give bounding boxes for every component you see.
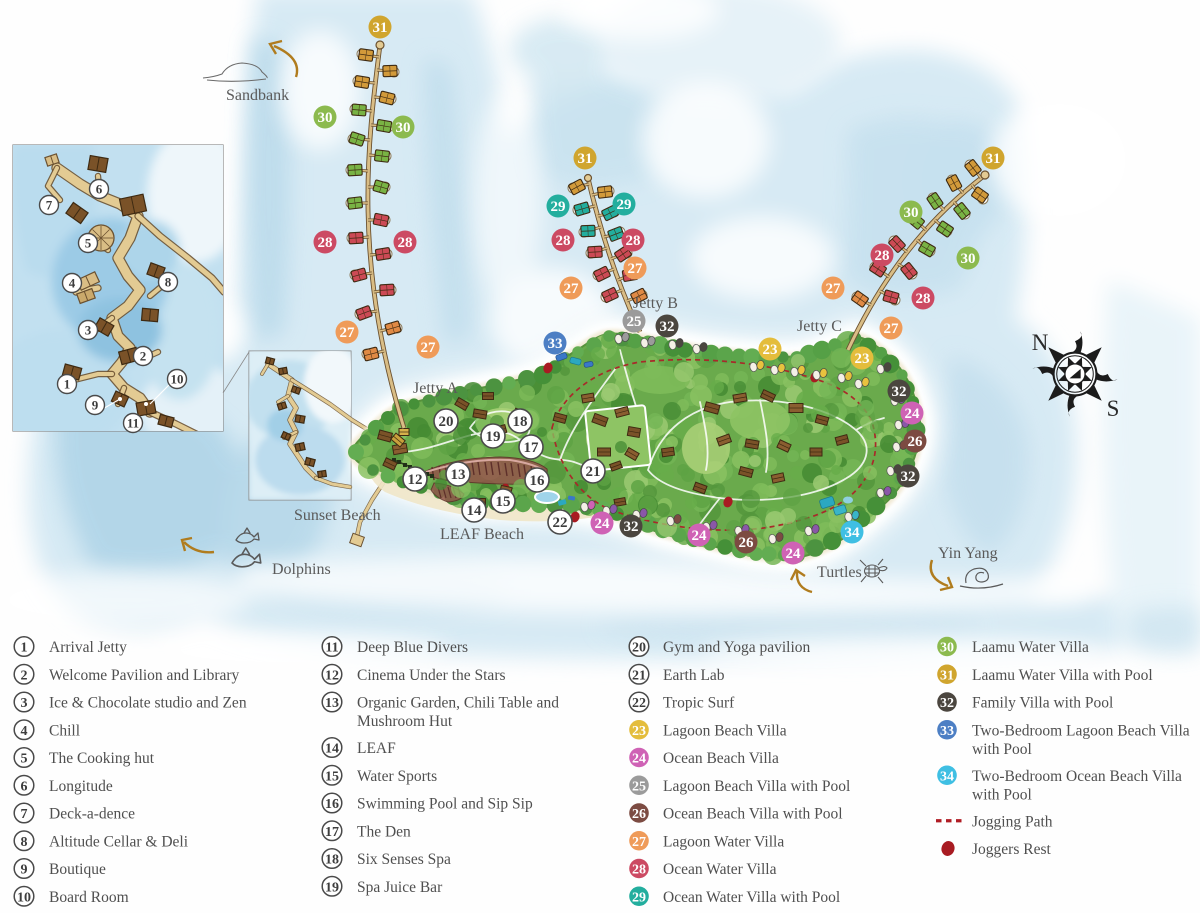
- svg-text:33: 33: [548, 336, 563, 352]
- svg-text:Lagoon Water Villa: Lagoon Water Villa: [663, 833, 784, 850]
- svg-text:Ocean Water Villa: Ocean Water Villa: [663, 861, 777, 878]
- svg-text:Ocean Beach Villa with Pool: Ocean Beach Villa with Pool: [663, 806, 843, 823]
- svg-text:30: 30: [904, 205, 919, 221]
- svg-text:Sandbank: Sandbank: [226, 87, 289, 104]
- svg-text:Swimming Pool and Sip Sip: Swimming Pool and Sip Sip: [357, 796, 533, 813]
- svg-text:27: 27: [884, 321, 900, 337]
- svg-text:9: 9: [21, 863, 28, 878]
- svg-text:Family Villa with Pool: Family Villa with Pool: [972, 695, 1113, 712]
- svg-text:13: 13: [325, 696, 339, 711]
- svg-text:2: 2: [21, 668, 28, 683]
- svg-text:16: 16: [325, 797, 339, 812]
- svg-text:31: 31: [940, 668, 954, 683]
- svg-text:Deck-a-dence: Deck-a-dence: [49, 806, 135, 823]
- svg-text:29: 29: [617, 197, 632, 213]
- svg-text:Joggers Rest: Joggers Rest: [972, 841, 1051, 858]
- svg-text:Six Senses Spa: Six Senses Spa: [357, 851, 451, 868]
- svg-text:27: 27: [628, 261, 644, 277]
- svg-text:6: 6: [21, 779, 28, 794]
- svg-text:Ice & Chocolate studio and Zen: Ice & Chocolate studio and Zen: [49, 695, 247, 712]
- svg-text:Altitude Cellar & Deli: Altitude Cellar & Deli: [49, 833, 189, 850]
- svg-text:Ocean Beach Villa: Ocean Beach Villa: [663, 750, 779, 767]
- svg-text:Lagoon Beach Villa with Pool: Lagoon Beach Villa with Pool: [663, 778, 850, 795]
- svg-text:7: 7: [46, 197, 53, 212]
- svg-text:1: 1: [21, 641, 28, 656]
- svg-text:Water Sports: Water Sports: [357, 768, 437, 785]
- svg-text:24: 24: [692, 528, 708, 544]
- svg-text:5: 5: [85, 235, 92, 250]
- svg-text:14: 14: [467, 503, 483, 519]
- svg-text:21: 21: [586, 464, 601, 480]
- svg-text:with Pool: with Pool: [972, 786, 1032, 803]
- svg-text:33: 33: [940, 724, 954, 739]
- svg-text:N: N: [1032, 330, 1049, 355]
- svg-text:28: 28: [626, 233, 641, 249]
- svg-text:8: 8: [21, 835, 28, 850]
- svg-text:19: 19: [325, 880, 339, 895]
- svg-text:11: 11: [127, 415, 139, 430]
- svg-text:13: 13: [451, 467, 466, 483]
- svg-text:The Den: The Den: [357, 823, 411, 840]
- svg-text:17: 17: [325, 825, 339, 840]
- svg-text:12: 12: [325, 668, 339, 683]
- svg-text:29: 29: [632, 890, 646, 905]
- svg-text:10: 10: [171, 371, 184, 386]
- svg-text:Laamu Water Villa with Pool: Laamu Water Villa with Pool: [972, 667, 1153, 684]
- svg-text:22: 22: [553, 515, 568, 531]
- svg-text:8: 8: [165, 274, 172, 289]
- svg-text:27: 27: [632, 835, 646, 850]
- svg-text:Ocean Water Villa with Pool: Ocean Water Villa with Pool: [663, 889, 840, 906]
- svg-text:Lagoon Beach Villa: Lagoon Beach Villa: [663, 722, 787, 739]
- svg-text:28: 28: [632, 863, 646, 878]
- svg-text:28: 28: [398, 235, 413, 251]
- svg-text:22: 22: [632, 696, 646, 711]
- svg-text:27: 27: [564, 281, 580, 297]
- svg-text:34: 34: [845, 525, 861, 541]
- svg-text:7: 7: [21, 807, 28, 822]
- svg-text:Welcome Pavilion and Library: Welcome Pavilion and Library: [49, 667, 240, 684]
- svg-text:Deep Blue Divers: Deep Blue Divers: [357, 639, 468, 656]
- svg-text:LEAF: LEAF: [357, 740, 396, 757]
- svg-text:25: 25: [632, 779, 646, 794]
- svg-text:20: 20: [632, 641, 646, 656]
- svg-text:Spa Juice Bar: Spa Juice Bar: [357, 879, 443, 896]
- svg-text:26: 26: [908, 434, 924, 450]
- svg-text:Laamu Water Villa: Laamu Water Villa: [972, 639, 1089, 656]
- svg-text:24: 24: [786, 546, 802, 562]
- svg-text:30: 30: [318, 110, 333, 126]
- svg-text:LEAF Beach: LEAF Beach: [440, 526, 524, 543]
- svg-text:27: 27: [421, 340, 437, 356]
- svg-text:26: 26: [632, 807, 646, 822]
- svg-text:Yin Yang: Yin Yang: [938, 545, 998, 562]
- svg-text:The Cooking hut: The Cooking hut: [49, 750, 155, 767]
- svg-text:1: 1: [64, 376, 71, 391]
- svg-text:26: 26: [739, 535, 755, 551]
- svg-text:30: 30: [940, 641, 954, 656]
- svg-text:24: 24: [632, 752, 646, 767]
- svg-text:28: 28: [556, 233, 571, 249]
- svg-text:14: 14: [325, 742, 339, 757]
- svg-text:4: 4: [21, 724, 28, 739]
- svg-text:28: 28: [318, 235, 333, 251]
- svg-text:Two-Bedroom Lagoon Beach Villa: Two-Bedroom Lagoon Beach Villa: [972, 722, 1190, 739]
- svg-text:18: 18: [325, 853, 339, 868]
- svg-text:with Pool: with Pool: [972, 741, 1032, 758]
- svg-text:32: 32: [624, 519, 639, 535]
- svg-text:3: 3: [85, 322, 92, 337]
- svg-text:3: 3: [21, 696, 28, 711]
- svg-text:23: 23: [763, 342, 778, 358]
- svg-text:Jetty B: Jetty B: [633, 295, 678, 312]
- svg-text:24: 24: [595, 516, 611, 532]
- svg-text:Chill: Chill: [49, 722, 80, 739]
- svg-text:30: 30: [396, 120, 411, 136]
- svg-text:32: 32: [940, 696, 954, 711]
- svg-text:19: 19: [486, 429, 501, 445]
- svg-text:Jetty A: Jetty A: [413, 380, 458, 397]
- svg-text:15: 15: [496, 494, 511, 510]
- svg-text:28: 28: [875, 248, 890, 264]
- svg-text:34: 34: [940, 769, 954, 784]
- svg-text:32: 32: [660, 319, 675, 335]
- svg-text:Jetty C: Jetty C: [797, 318, 842, 335]
- svg-text:Jogging Path: Jogging Path: [972, 813, 1053, 830]
- svg-text:10: 10: [17, 890, 31, 905]
- svg-text:5: 5: [21, 752, 28, 767]
- svg-text:Dolphins: Dolphins: [272, 561, 331, 578]
- svg-text:Sunset Beach: Sunset Beach: [294, 507, 381, 524]
- svg-text:31: 31: [986, 151, 1001, 167]
- svg-text:24: 24: [905, 406, 921, 422]
- svg-text:Cinema Under the Stars: Cinema Under the Stars: [357, 667, 506, 684]
- svg-text:11: 11: [325, 641, 338, 656]
- svg-text:Arrival Jetty: Arrival Jetty: [49, 639, 127, 656]
- svg-text:4: 4: [69, 275, 76, 290]
- svg-text:18: 18: [513, 414, 528, 430]
- svg-text:Two-Bedroom Ocean Beach Villa: Two-Bedroom Ocean Beach Villa: [972, 768, 1182, 785]
- svg-text:Turtles: Turtles: [817, 564, 862, 581]
- svg-text:20: 20: [439, 414, 454, 430]
- svg-text:Mushroom Hut: Mushroom Hut: [357, 713, 453, 730]
- svg-text:27: 27: [826, 281, 842, 297]
- svg-text:27: 27: [340, 325, 356, 341]
- svg-text:Board Room: Board Room: [49, 889, 129, 906]
- svg-text:Boutique: Boutique: [49, 861, 106, 878]
- svg-text:31: 31: [373, 20, 388, 36]
- svg-text:17: 17: [524, 440, 540, 456]
- svg-text:Organic Garden, Chili Table an: Organic Garden, Chili Table and: [357, 695, 559, 712]
- svg-text:23: 23: [632, 724, 646, 739]
- svg-text:28: 28: [916, 291, 931, 307]
- svg-text:15: 15: [325, 769, 339, 784]
- svg-text:Earth Lab: Earth Lab: [663, 667, 725, 684]
- svg-text:S: S: [1107, 396, 1120, 421]
- svg-text:Tropic Surf: Tropic Surf: [663, 695, 735, 712]
- svg-text:Gym and Yoga pavilion: Gym and Yoga pavilion: [663, 639, 811, 656]
- svg-text:6: 6: [96, 181, 103, 196]
- svg-text:12: 12: [408, 472, 423, 488]
- svg-text:21: 21: [632, 668, 646, 683]
- svg-text:Longitude: Longitude: [49, 778, 113, 795]
- svg-text:2: 2: [140, 348, 147, 363]
- svg-text:29: 29: [551, 199, 566, 215]
- svg-text:16: 16: [530, 473, 546, 489]
- svg-text:32: 32: [901, 469, 916, 485]
- svg-text:31: 31: [578, 151, 593, 167]
- svg-text:9: 9: [92, 397, 99, 412]
- svg-text:30: 30: [961, 251, 976, 267]
- svg-text:25: 25: [627, 314, 642, 330]
- svg-text:32: 32: [892, 384, 907, 400]
- svg-text:23: 23: [855, 351, 870, 367]
